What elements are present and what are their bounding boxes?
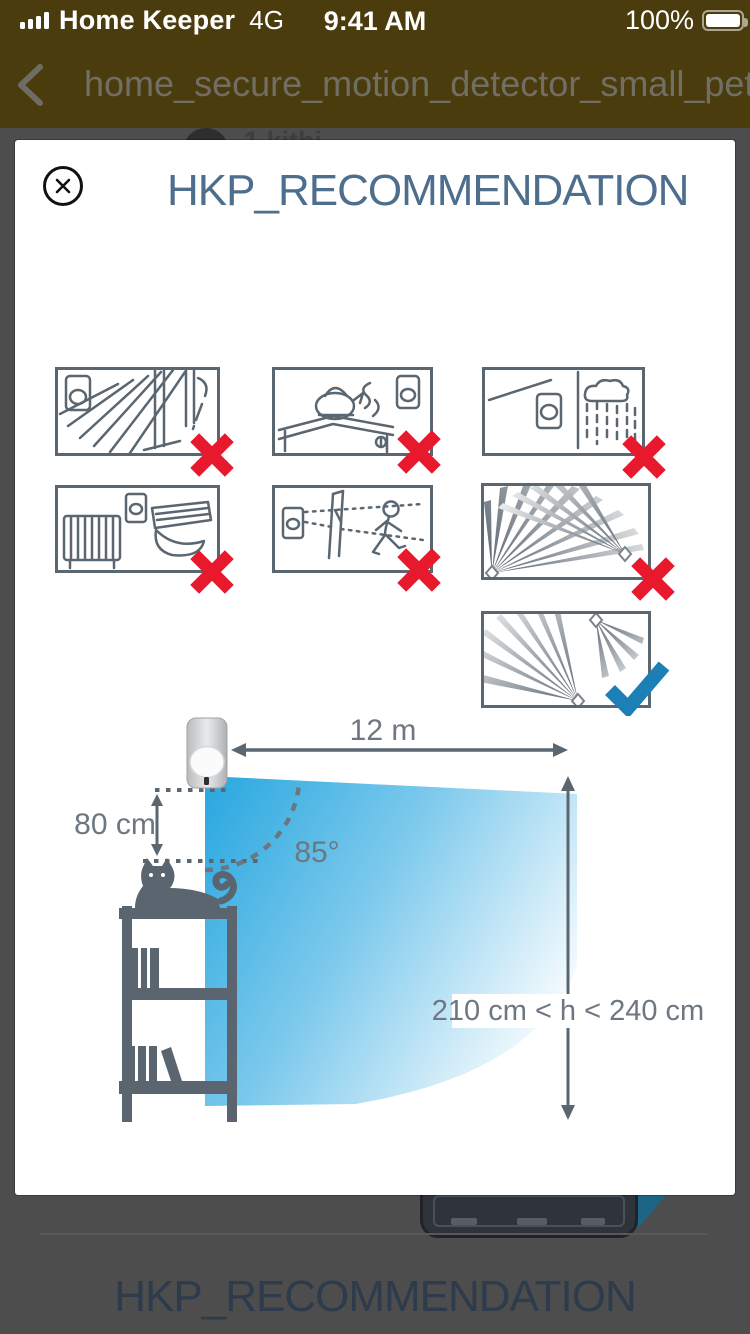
offset-label: 80 cm	[74, 808, 156, 841]
motion-detector	[187, 718, 227, 788]
battery-icon	[702, 10, 744, 31]
nav-bar: home_secure_motion_detector_small_pet	[0, 40, 750, 128]
cross-icon	[394, 545, 444, 595]
cross-icon	[619, 432, 669, 482]
angle-label: 85°	[294, 836, 339, 869]
guideline-detectors-facing-overlapping-beams	[481, 483, 651, 580]
close-button[interactable]	[43, 166, 83, 206]
height-label: 210 cm < h < 240 cm	[432, 995, 704, 1027]
cross-icon	[628, 554, 678, 604]
page-title: home_secure_motion_detector_small_pet	[84, 63, 750, 105]
detection-cone	[205, 776, 577, 1106]
cross-icon	[394, 427, 444, 477]
status-bar: Home Keeper 4G 9:41 AM 100%	[0, 0, 750, 40]
back-button[interactable]	[14, 64, 46, 106]
installation-diagram: 12 m 80 cm 85° 210 cm < h < 240 cm	[15, 710, 735, 1140]
app-screen: Home Keeper 4G 9:41 AM 100% home_secure_…	[0, 0, 750, 1334]
close-icon	[46, 169, 80, 203]
modal-title: HKP_RECOMMENDATION	[167, 166, 688, 216]
battery-percent: 100%	[625, 5, 694, 36]
range-label: 12 m	[350, 714, 417, 747]
recommendation-modal: HKP_RECOMMENDATION	[15, 140, 735, 1195]
check-icon	[604, 658, 670, 716]
cross-icon	[187, 547, 237, 597]
cross-icon	[187, 430, 237, 480]
